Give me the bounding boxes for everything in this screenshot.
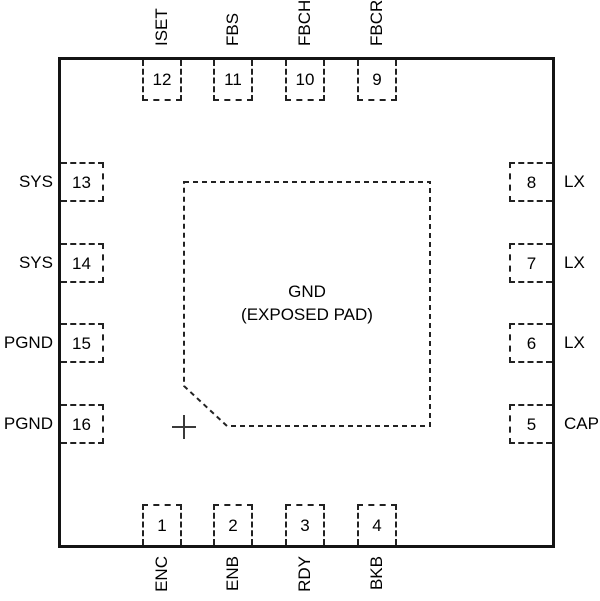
pin-number-5: 5 [527,416,536,433]
pin-number-1: 1 [157,517,166,534]
pin-label-enb: ENB [224,556,242,601]
pin-label-fbcr: FBCR [368,0,386,46]
pin-number-12: 12 [153,71,172,88]
pin-number-6: 6 [527,335,536,352]
pin-box-9: 9 [357,60,397,101]
pin-number-13: 13 [72,174,91,191]
exposed-pad-label-line1: GND [184,280,430,303]
pin-box-1: 1 [142,504,182,545]
pin-box-16: 16 [61,404,104,444]
pin-box-2: 2 [213,504,253,545]
pin-box-14: 14 [61,243,104,283]
pin-label-rdy: RDY [296,556,314,601]
pin-number-8: 8 [527,174,536,191]
pin-number-7: 7 [527,255,536,272]
pin-label-fbch: FBCH [296,0,314,46]
exposed-pad-label-line2: (EXPOSED PAD) [184,303,430,326]
pin-box-15: 15 [61,323,104,363]
pin-label-enc: ENC [153,556,171,601]
pin-number-16: 16 [72,416,91,433]
pin-label-fbs: FBS [224,0,242,46]
pinout-diagram: GND (EXPOSED PAD) 12 11 10 9 ISET FBS FB… [0,0,600,601]
pin-box-12: 12 [142,60,182,101]
pin-label-lx-6: LX [564,333,600,353]
exposed-pad-label: GND (EXPOSED PAD) [184,280,430,326]
pin-box-4: 4 [357,504,397,545]
pin-box-6: 6 [509,323,552,363]
pin-number-11: 11 [224,71,242,88]
pin-box-5: 5 [509,404,552,444]
pin-number-10: 10 [296,71,315,88]
pin-label-iset: ISET [153,0,171,46]
pin-number-2: 2 [228,517,237,534]
pin-number-15: 15 [72,335,91,352]
pin-number-14: 14 [72,255,91,272]
pin-number-3: 3 [300,517,309,534]
pin-number-9: 9 [372,71,381,88]
pin-box-3: 3 [285,504,325,545]
pin-label-lx-7: LX [564,253,600,273]
pin-box-13: 13 [61,162,104,202]
pin-label-cap-5: CAP [564,414,600,434]
pin-box-10: 10 [285,60,325,101]
pin-number-4: 4 [372,517,381,534]
pin-label-pgnd-16: PGND [0,414,53,434]
pin-label-pgnd-15: PGND [0,333,53,353]
pin-label-sys-13: SYS [0,172,53,192]
center-mark-icon [172,415,196,439]
pin-label-sys-14: SYS [0,253,53,273]
pin-box-7: 7 [509,243,552,283]
pin-label-bkb: BKB [368,556,386,601]
pin-box-8: 8 [509,162,552,202]
pin-box-11: 11 [213,60,253,101]
pin-label-lx-8: LX [564,172,600,192]
